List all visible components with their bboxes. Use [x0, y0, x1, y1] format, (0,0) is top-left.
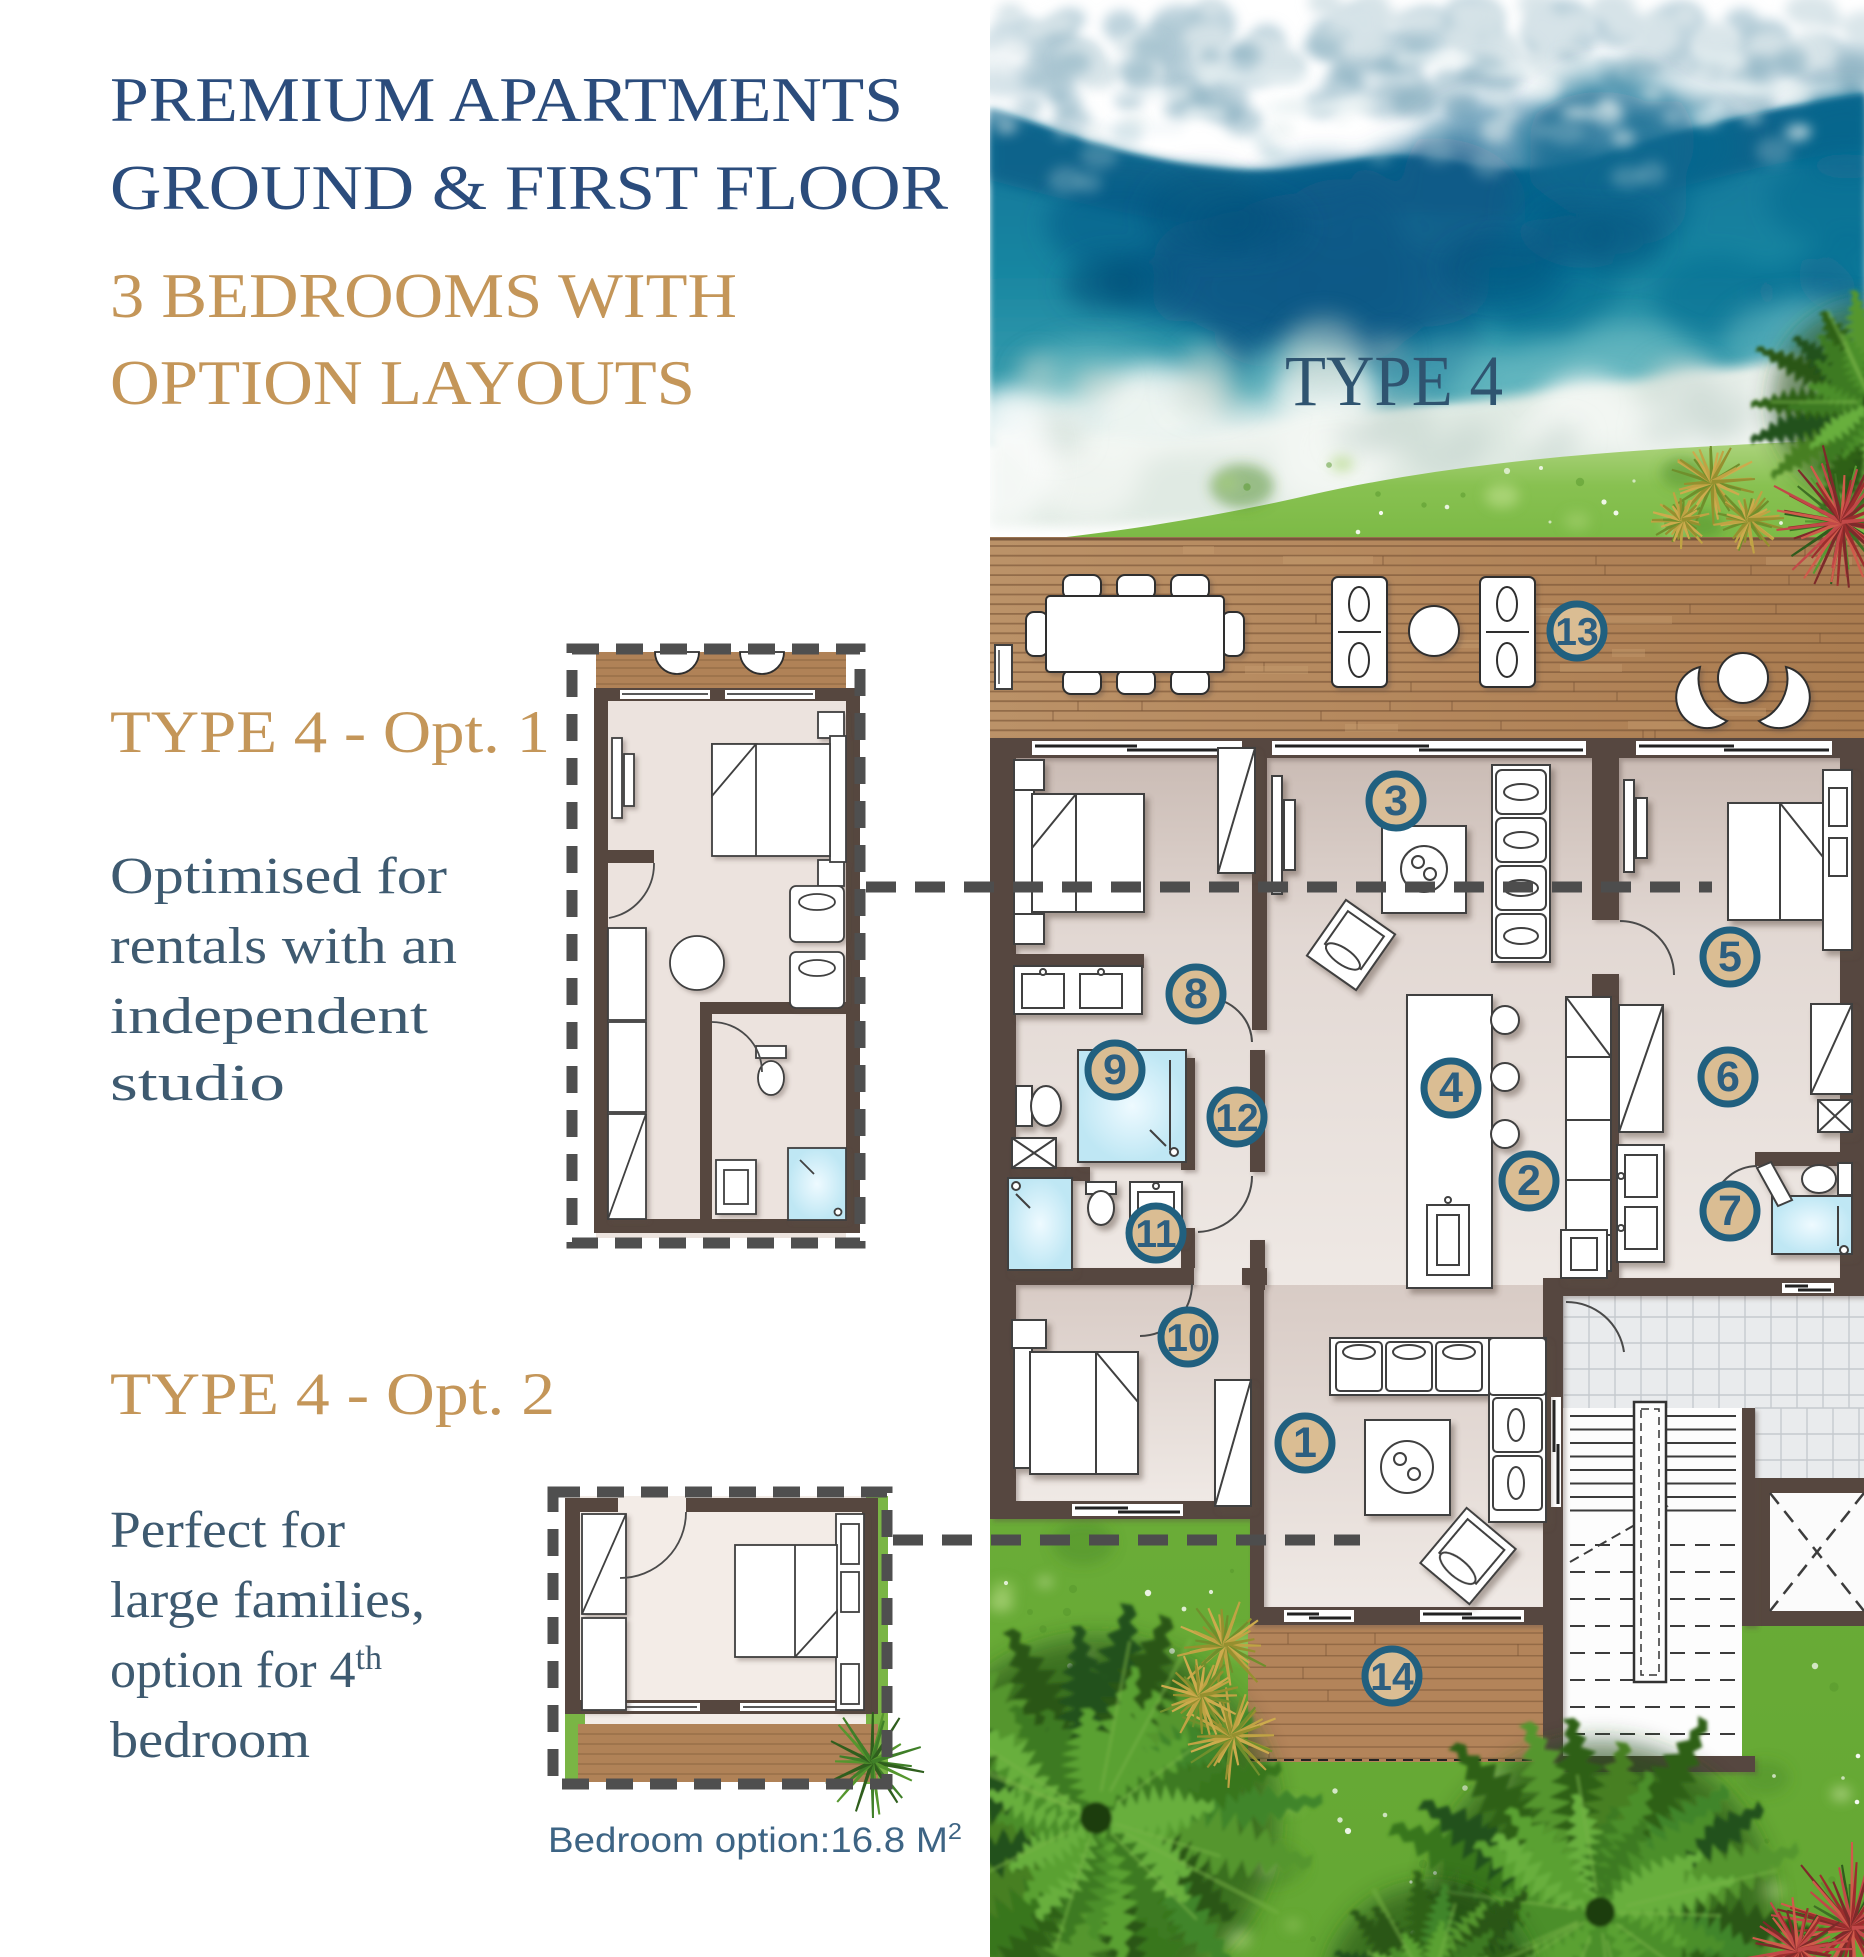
svg-text:PREMIUM APARTMENTS: PREMIUM APARTMENTS [110, 65, 903, 135]
svg-text:large families,: large families, [110, 1572, 425, 1629]
svg-text:14: 14 [1370, 1656, 1414, 1699]
svg-text:7: 7 [1718, 1187, 1742, 1235]
svg-text:Perfect for: Perfect for [110, 1502, 345, 1559]
svg-text:4: 4 [1439, 1064, 1463, 1112]
svg-text:9: 9 [1103, 1046, 1127, 1094]
svg-text:option for 4th: option for 4th [110, 1640, 382, 1699]
svg-text:Bedroom option:16.8 M2: Bedroom option:16.8 M2 [548, 1818, 962, 1860]
svg-text:11: 11 [1135, 1213, 1176, 1256]
svg-text:GROUND & FIRST FLOOR: GROUND & FIRST FLOOR [110, 153, 948, 223]
svg-text:3: 3 [1384, 777, 1408, 825]
svg-text:12: 12 [1215, 1097, 1258, 1140]
svg-text:10: 10 [1166, 1317, 1209, 1360]
svg-text:6: 6 [1716, 1053, 1740, 1101]
svg-text:bedroom: bedroom [110, 1712, 310, 1769]
svg-text:2: 2 [1517, 1157, 1541, 1205]
svg-text:TYPE 4: TYPE 4 [1285, 341, 1503, 421]
svg-text:rentals with an: rentals with an [110, 918, 457, 975]
svg-text:13: 13 [1555, 611, 1598, 654]
svg-text:TYPE 4 - Opt. 2: TYPE 4 - Opt. 2 [110, 1361, 555, 1427]
svg-text:1: 1 [1293, 1419, 1317, 1467]
svg-text:Optimised for: Optimised for [110, 848, 447, 905]
svg-text:TYPE 4 - Opt. 1: TYPE 4 - Opt. 1 [110, 699, 550, 765]
svg-text:studio: studio [110, 1055, 285, 1112]
svg-text:OPTION LAYOUTS: OPTION LAYOUTS [110, 348, 695, 418]
svg-text:3 BEDROOMS WITH: 3 BEDROOMS WITH [110, 261, 737, 331]
svg-text:5: 5 [1718, 933, 1742, 981]
svg-text:8: 8 [1184, 970, 1208, 1018]
svg-text:independent: independent [110, 988, 429, 1045]
